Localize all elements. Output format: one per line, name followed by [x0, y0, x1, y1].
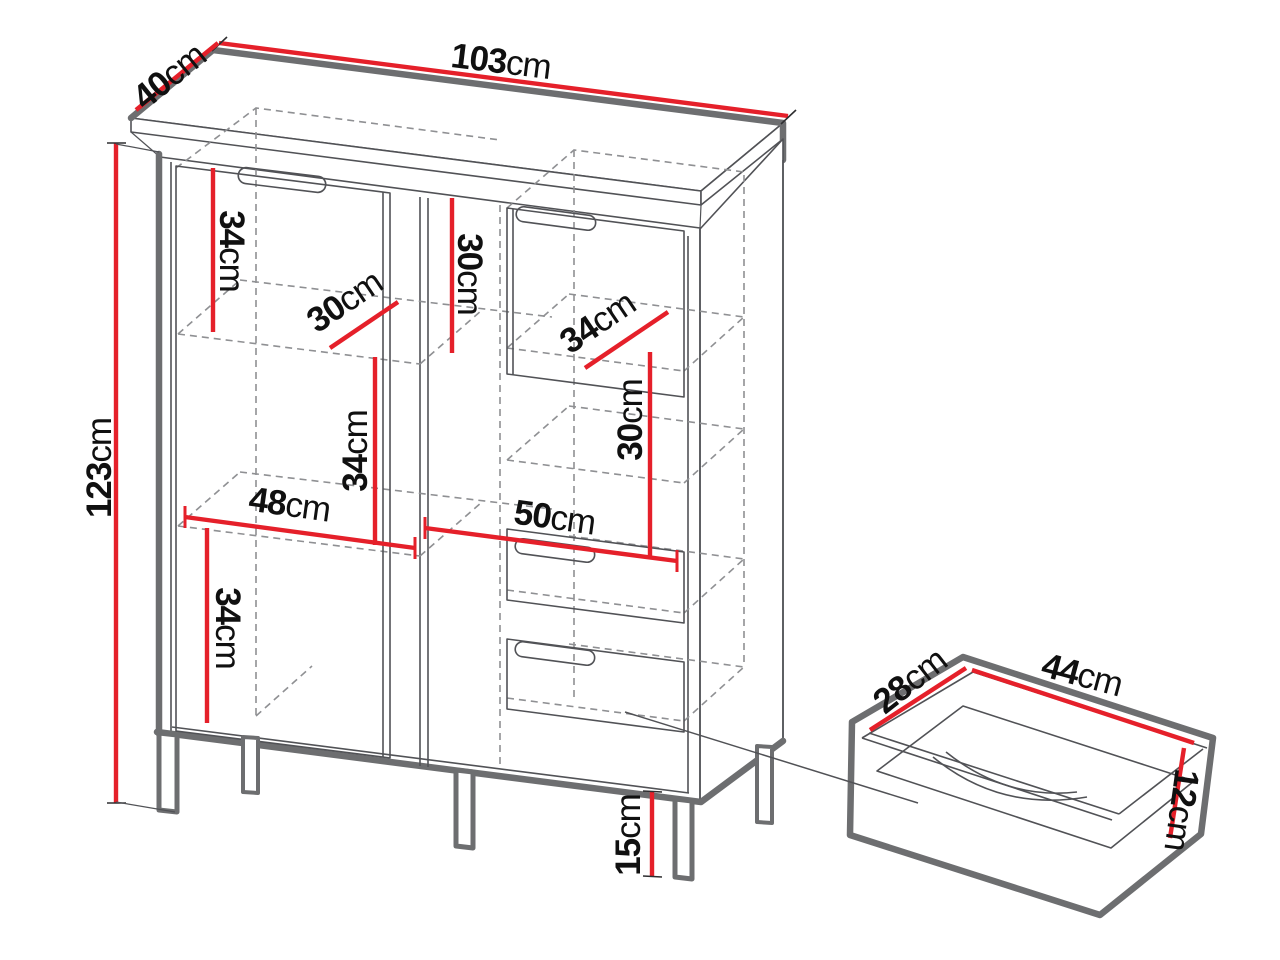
dim-label-left-bottom-section: 34cm: [208, 587, 247, 669]
right-side-panel: [700, 139, 783, 800]
dim-label-left-top-section: 34cm: [212, 210, 251, 292]
dim-label-left-shelf-depth: 30cm: [300, 262, 389, 340]
dim-label-right-middle-section: 30cm: [611, 379, 650, 461]
cabinet-drawing: [107, 37, 796, 879]
leg-front-middle: [456, 770, 473, 848]
dim-label-right-shelf-depth: 34cm: [553, 283, 642, 361]
left-bottom-corner: [256, 666, 312, 716]
dim-label-leg-height: 15cm: [609, 794, 648, 876]
top-right-joint: [700, 205, 701, 228]
diagram-canvas: 103cm 40cm 123cm 34cm 30cm 30cm 34cm 34c…: [0, 0, 1280, 960]
dim-label-right-top-section: 30cm: [450, 233, 489, 315]
drawer-front-2: [507, 639, 684, 732]
dim-label-left-middle-section: 34cm: [336, 410, 375, 492]
dim-label-right-inner-width: 50cm: [511, 493, 597, 543]
cabinet-legs: [159, 733, 772, 879]
leg-front-right: [675, 799, 692, 879]
leg-back-middle: [243, 737, 258, 793]
leg-front-left: [159, 733, 177, 812]
cabinet-interior-hidden-lines: [176, 108, 744, 765]
dim-15-tick-top: [643, 791, 662, 792]
furniture-dimension-drawing: 103cm 40cm 123cm 34cm 30cm 30cm 34cm 34c…: [0, 0, 1280, 960]
dim-123-witness-top: [116, 144, 159, 152]
dim-label-height: 123cm: [80, 418, 119, 518]
dim-label-left-inner-width: 48cm: [246, 480, 332, 530]
